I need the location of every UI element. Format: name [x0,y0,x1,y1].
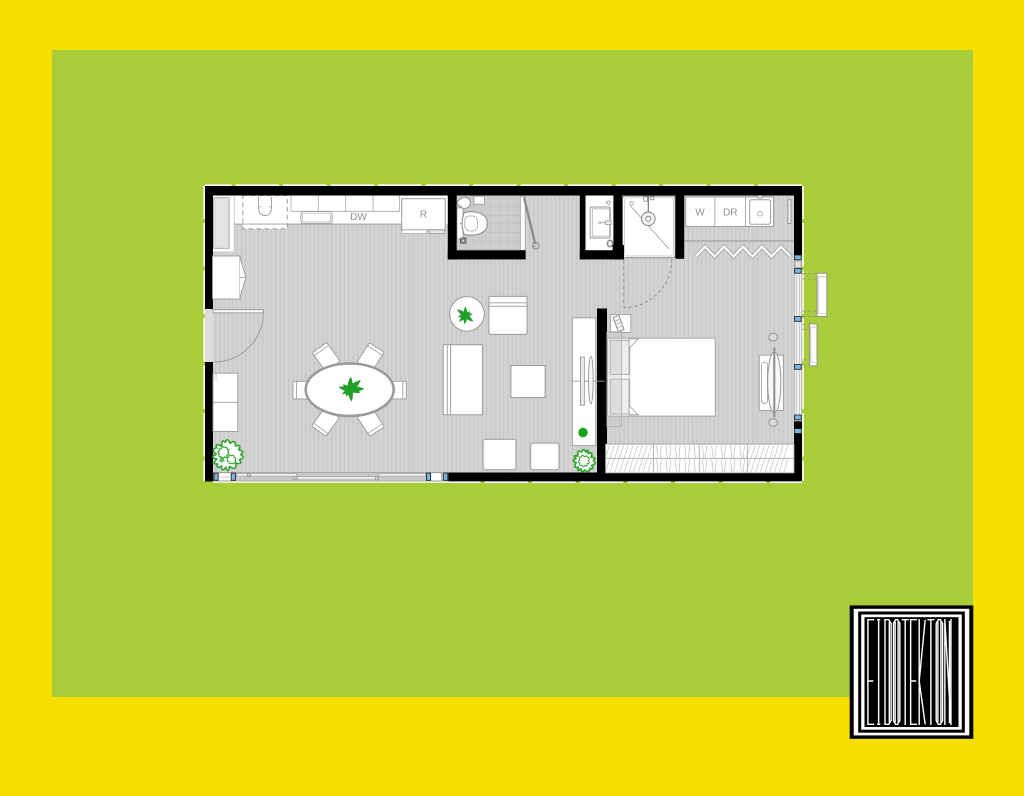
svg-text:W: W [695,208,705,219]
svg-text:R: R [420,210,427,221]
svg-text:DR: DR [723,208,737,219]
svg-text:DW: DW [350,212,367,223]
